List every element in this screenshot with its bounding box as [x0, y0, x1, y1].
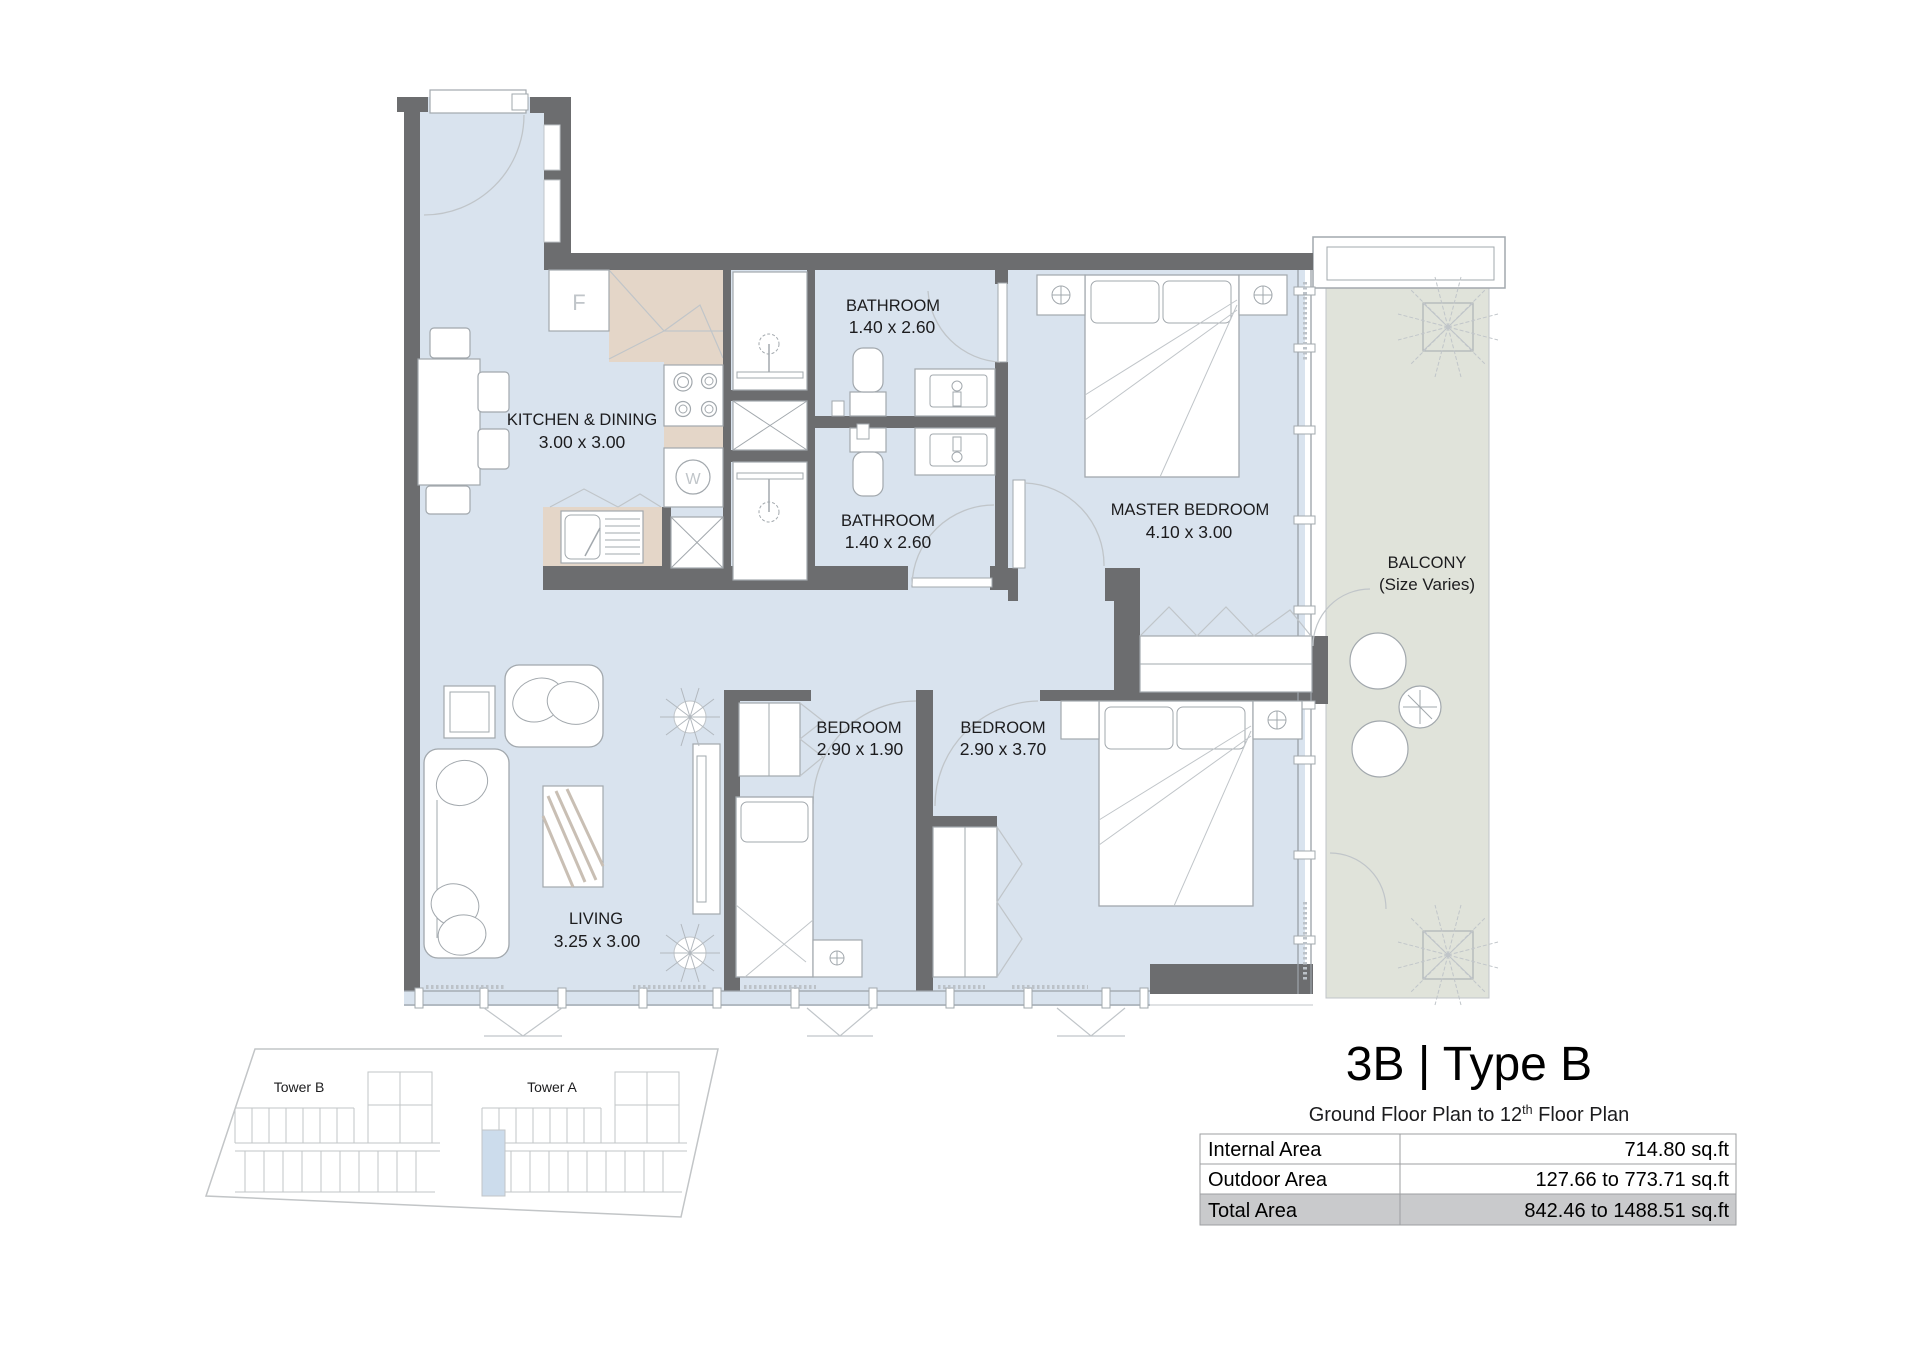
svg-text:4.10 x 3.00: 4.10 x 3.00 — [1146, 522, 1233, 542]
svg-text:Tower B: Tower B — [274, 1079, 325, 1095]
svg-text:Tower A: Tower A — [527, 1079, 577, 1095]
svg-text:BEDROOM: BEDROOM — [816, 719, 901, 737]
svg-text:Ground Floor Plan to 12th Floo: Ground Floor Plan to 12th Floor Plan — [1309, 1103, 1630, 1126]
svg-text:BATHROOM: BATHROOM — [841, 512, 935, 530]
svg-text:3.00 x 3.00: 3.00 x 3.00 — [539, 432, 626, 452]
svg-text:714.80 sq.ft: 714.80 sq.ft — [1624, 1139, 1729, 1161]
svg-text:MASTER BEDROOM: MASTER BEDROOM — [1111, 501, 1270, 519]
svg-text:2.90 x 3.70: 2.90 x 3.70 — [960, 739, 1047, 759]
svg-text:W: W — [685, 471, 701, 488]
svg-text:BALCONY: BALCONY — [1388, 554, 1467, 572]
svg-text:KITCHEN & DINING: KITCHEN & DINING — [507, 411, 657, 429]
svg-text:1.40 x 2.60: 1.40 x 2.60 — [849, 317, 936, 337]
svg-text:BEDROOM: BEDROOM — [960, 719, 1045, 737]
svg-text:1.40 x 2.60: 1.40 x 2.60 — [845, 532, 932, 552]
svg-text:Outdoor Area: Outdoor Area — [1208, 1169, 1328, 1191]
svg-text:LIVING: LIVING — [569, 910, 623, 928]
svg-text:(Size Varies): (Size Varies) — [1379, 575, 1475, 594]
svg-text:127.66 to 773.71 sq.ft: 127.66 to 773.71 sq.ft — [1536, 1169, 1730, 1191]
svg-text:3.25 x 3.00: 3.25 x 3.00 — [554, 931, 641, 951]
svg-text:Internal Area: Internal Area — [1208, 1139, 1322, 1161]
svg-text:BATHROOM: BATHROOM — [846, 297, 940, 315]
svg-text:842.46 to 1488.51 sq.ft: 842.46 to 1488.51 sq.ft — [1524, 1200, 1729, 1222]
svg-text:F: F — [572, 290, 585, 315]
svg-text:Total Area: Total Area — [1208, 1200, 1298, 1222]
svg-text:3B | Type B: 3B | Type B — [1346, 1038, 1592, 1091]
svg-text:2.90 x 1.90: 2.90 x 1.90 — [817, 739, 904, 759]
